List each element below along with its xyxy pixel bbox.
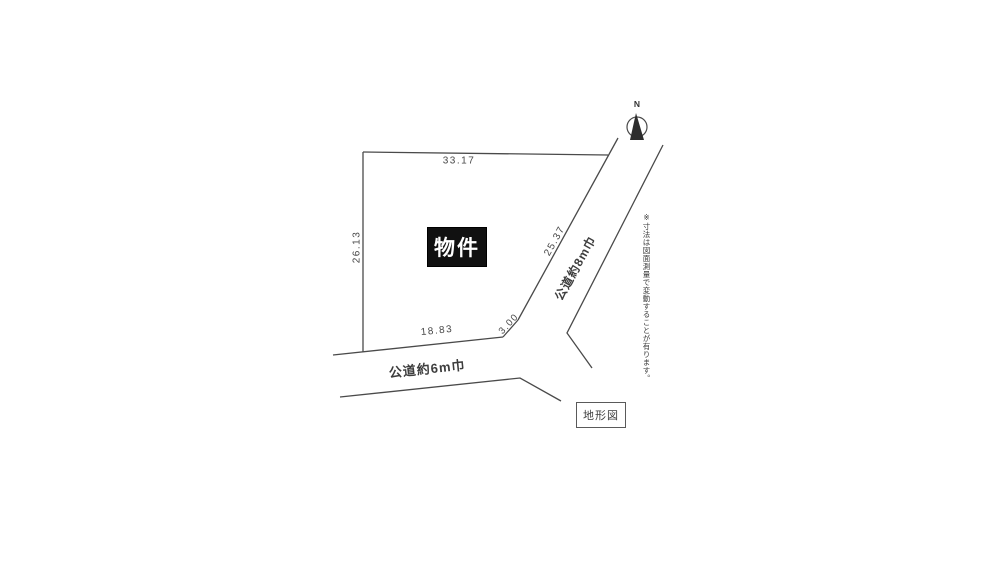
land-plot-diagram: N 33.17 26.13 25.37 3.00 18.83 公道約6m巾 公道… xyxy=(0,0,1000,563)
legend-title-box: 地形図 xyxy=(576,402,626,428)
bottom-road-lower-edge xyxy=(340,378,561,401)
dimension-left: 26.13 xyxy=(352,231,363,264)
legend-title: 地形図 xyxy=(583,407,619,423)
disclaimer-note: ※寸法は図面測量で変動することが有ります。 xyxy=(641,213,652,403)
parcel-bottom-edge-road-top-edge xyxy=(333,337,503,355)
plot-linework xyxy=(0,0,1000,563)
parcel-top-edge xyxy=(363,152,608,155)
compass-needle-icon xyxy=(630,113,644,140)
dimension-top: 33.17 xyxy=(443,156,476,167)
compass-north-label: N xyxy=(634,99,640,109)
property-label: 物件 xyxy=(434,232,480,262)
property-label-box: 物件 xyxy=(428,228,486,266)
